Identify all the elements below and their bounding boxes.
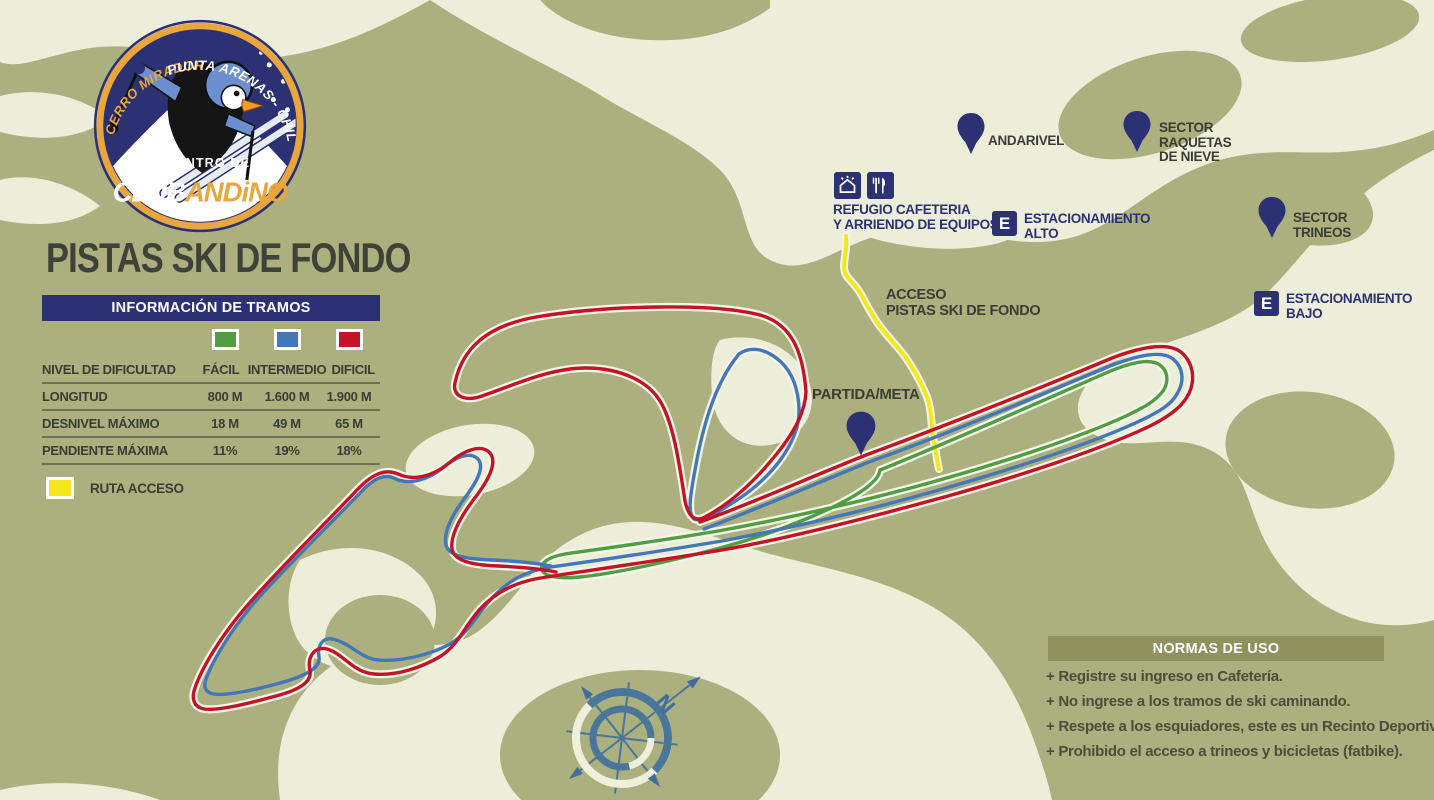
map-pin-raquetas [1122,110,1152,154]
access-route-legend: RUTA ACCESO [46,477,184,499]
logo-centro-de-ski: CENTRO DE SKI [166,155,279,170]
estacionamiento-alto-label: ESTACIONAMIENTO ALTO [1024,212,1150,241]
normas-header: NORMAS DE USO [1048,636,1384,661]
difficulty-swatch-row [42,321,380,357]
intermedio-swatch [274,329,301,350]
info-table-header: INFORMACIÓN DE TRAMOS [42,295,380,321]
norma-rule: + Prohibido el acceso a trineos y bicicl… [1046,743,1432,760]
parking-alto-badge: E [992,211,1017,236]
facil-swatch [212,329,239,350]
table-row-longitud: LONGITUD 800 M 1.600 M 1.900 M [42,384,380,411]
estacionamiento-bajo-label: ESTACIONAMIENTO BAJO [1286,292,1412,321]
table-row-desnivel: DESNIVEL MÁXIMO 18 M 49 M 65 M [42,411,380,438]
logo-club-andino-text: CLUBANDiNO [113,176,288,207]
map-pin-icon [847,412,876,456]
dificil-swatch [336,329,363,350]
refugio-icons [834,172,894,199]
refugio-label: REFUGIO CAFETERIA Y ARRIENDO DE EQUIPOS [833,203,998,232]
map-pin-icon [958,113,985,154]
map-pin-icon [1259,197,1286,238]
ski-trail-map-poster: N [0,0,1434,800]
sector-raquetas-label: SECTOR RAQUETAS DE NIEVE [1159,121,1231,165]
ruta-acceso-label: RUTA ACCESO [90,481,184,496]
info-table: INFORMACIÓN DE TRAMOS NIVEL DE DIFICULTA… [42,295,380,465]
acceso-label: ACCESO PISTAS SKI DE FONDO [886,288,1040,319]
ruta-acceso-swatch [46,477,74,499]
page-title: PISTAS SKI DE FONDO [46,234,411,282]
cafeteria-icon [867,172,894,199]
parking-bajo-badge: E [1254,291,1279,316]
club-andino-logo: CERRO MIRADOR PUNTA ARENAS - CHILE CENTR… [88,12,312,236]
norma-rule: + Respete a los esquiadores, este es un … [1046,718,1432,735]
norma-rule: + No ingrese a los tramos de ski caminan… [1046,693,1432,710]
table-row-pendiente: PENDIENTE MÁXIMA 11% 19% 18% [42,438,380,465]
partida-meta-label: PARTIDA/META [812,387,920,403]
andarivel-label: ANDARIVEL [988,134,1064,149]
map-pin-andarivel [956,112,986,156]
map-pin-partida [845,410,877,458]
map-pin-trineos [1257,196,1287,240]
normas-rules: + Registre su ingreso en Cafetería. + No… [1046,668,1432,768]
sector-trineos-label: SECTOR TRINEOS [1293,211,1351,240]
map-pin-icon [1124,111,1151,152]
norma-rule: + Registre su ingreso en Cafetería. [1046,668,1432,685]
table-row-nivel: NIVEL DE DIFICULTAD FÁCIL INTERMEDIO DIF… [42,357,380,384]
refugio-icon [834,172,861,199]
